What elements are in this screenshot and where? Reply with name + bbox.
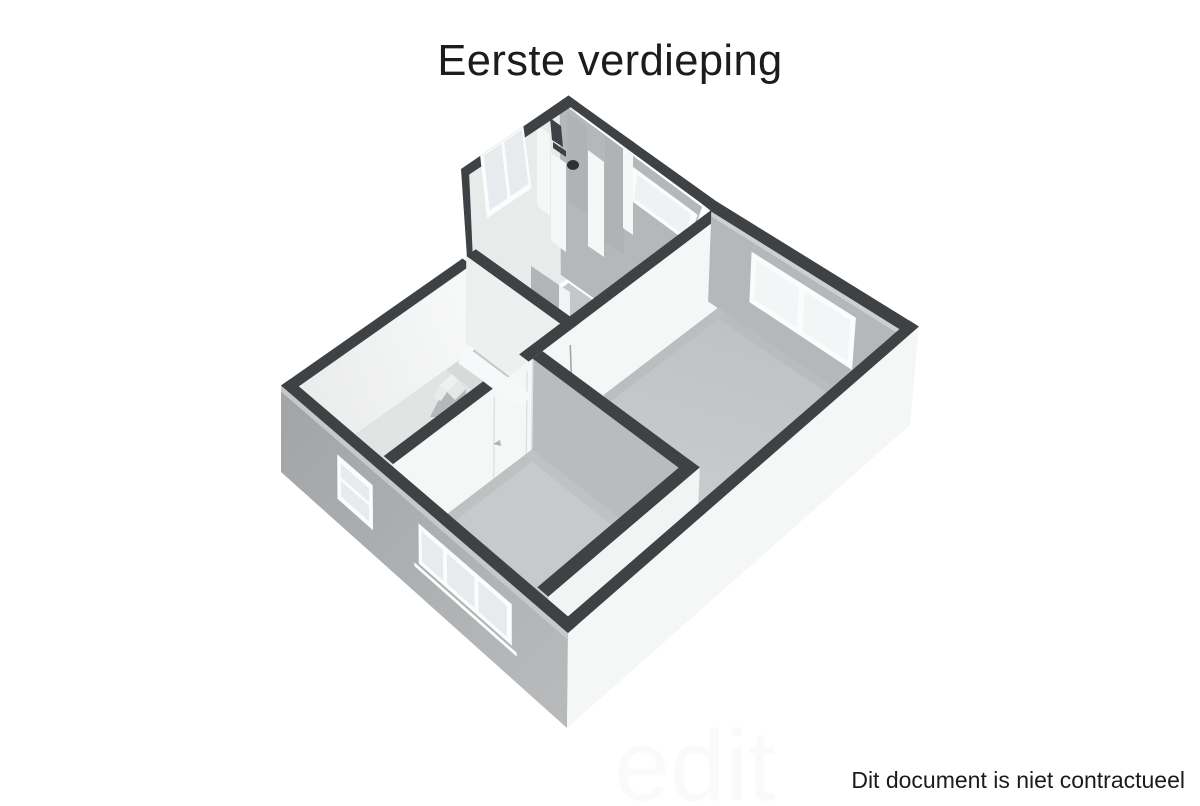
svg-text:Eerste verdieping: Eerste verdieping bbox=[437, 37, 782, 85]
svg-text:Dit document is niet contractu: Dit document is niet contractueel bbox=[851, 767, 1185, 793]
svg-text:edit: edit bbox=[614, 710, 775, 801]
